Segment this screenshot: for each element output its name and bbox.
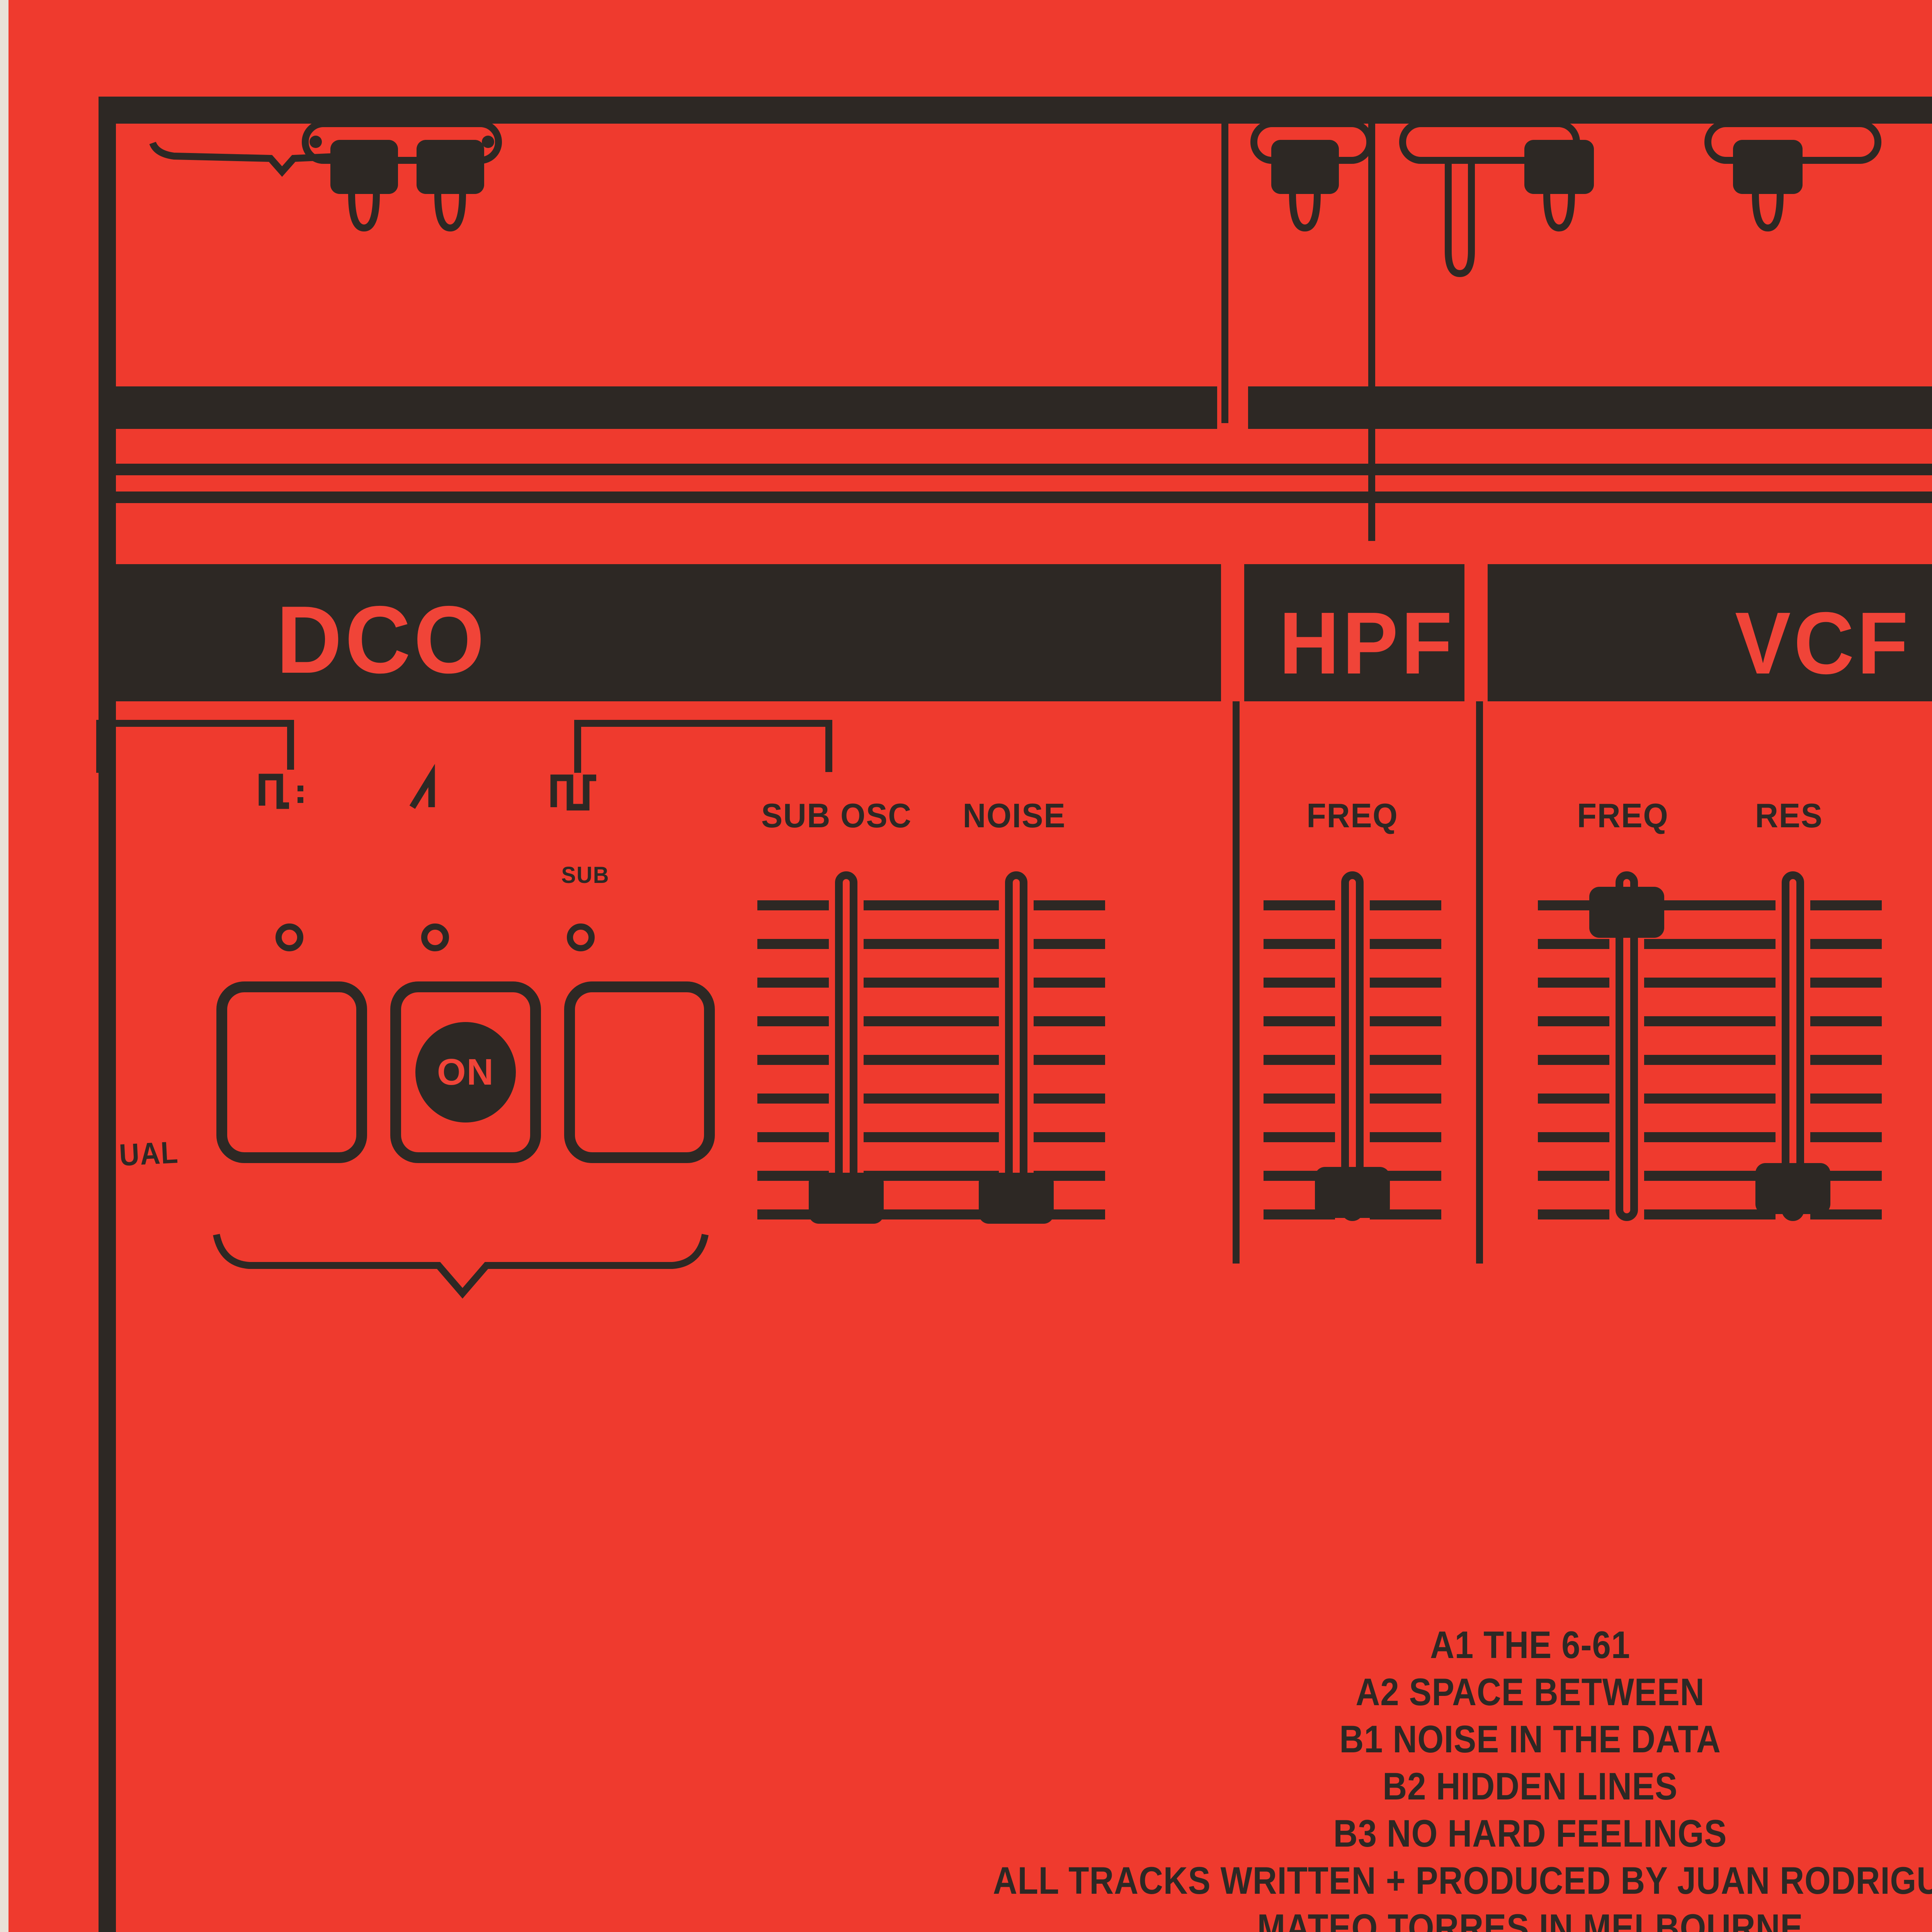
sub-small-label: SUB	[554, 862, 616, 888]
album-sleeve-back: DCO HPF VCF VCA SUB ON UAL SUB OSC NOISE	[0, 0, 1932, 1932]
saw-led	[421, 923, 449, 951]
credit-line: MATEO TORRES IN MELBOURNE	[935, 1904, 1932, 1932]
sawtooth-wave-icon	[408, 767, 458, 819]
track-item: B3 NO HARD FEELINGS	[935, 1810, 1932, 1857]
hpf-freq-label: FREQ	[1280, 796, 1425, 835]
dco-title: DCO	[276, 584, 487, 695]
vcf-freq-label: FREQ	[1550, 796, 1696, 835]
panel-border-top	[99, 97, 1932, 124]
bracket-line	[100, 723, 291, 773]
credit-line: ALL TRACKS WRITTEN + PRODUCED BY JUAN RO…	[935, 1857, 1932, 1904]
scan-edge-left	[0, 0, 9, 1932]
vcf-res-label: RES	[1716, 796, 1862, 835]
hpf-title: HPF	[1279, 593, 1455, 694]
pulse-wave-icon	[259, 767, 321, 819]
bracket-line	[578, 723, 829, 773]
square-led	[567, 923, 595, 951]
panel-border-left	[99, 97, 116, 1932]
track-item: A2 SPACE BETWEEN	[935, 1668, 1932, 1716]
square-wave-icon	[551, 767, 616, 819]
noise-label: NOISE	[942, 796, 1087, 835]
on-indicator: ON	[415, 1022, 516, 1122]
track-item: A1 THE 6-61	[935, 1621, 1932, 1668]
pulse-led	[276, 923, 303, 951]
on-indicator-label: ON	[437, 1051, 494, 1094]
vcf-top-title: VCF	[1735, 593, 1911, 694]
manual-scribble: UAL	[118, 1134, 179, 1173]
track-item: B2 HIDDEN LINES	[935, 1763, 1932, 1810]
track-item: B1 NOISE IN THE DATA	[935, 1716, 1932, 1763]
underbrace-line	[216, 1235, 705, 1293]
center-text-block: A1 THE 6-61 A2 SPACE BETWEEN B1 NOISE IN…	[935, 1621, 1932, 1932]
sub-osc-label: SUB OSC	[746, 796, 927, 835]
